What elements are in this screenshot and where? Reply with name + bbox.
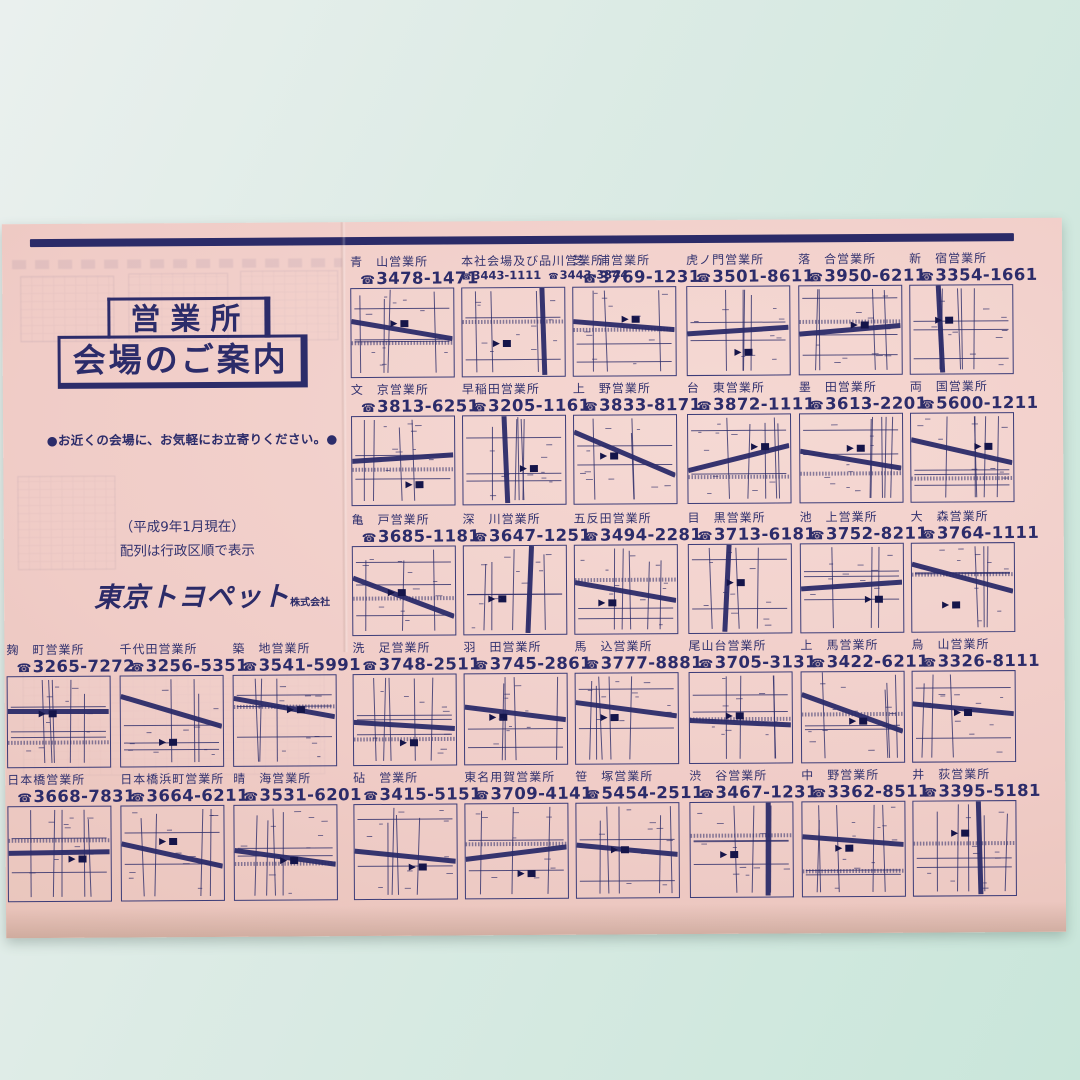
office-name: 芝 浦営業所 [572,254,676,268]
office-map [801,801,906,898]
office-map [689,671,794,764]
office-name: 尾山台営業所 [688,639,792,653]
map-sketch [234,675,336,765]
office-cell: 日本橋浜町営業所 ☎3664-6211 [120,773,224,805]
office-phone: 3541-5991 [259,655,361,675]
office-map [799,413,904,504]
office-phone: 3395-5181 [938,781,1040,801]
office-cell: 東名用賀営業所 ☎3709-4141 [464,771,568,803]
map-sketch [354,674,456,764]
office-map [7,806,112,903]
phone-icon: ☎ [810,656,825,670]
office-cell: 千代田営業所 ☎3256-5351 [119,643,223,675]
office-phone: 5600-1211 [936,393,1038,413]
phone-icon: ☎ [921,656,936,670]
office-phone-line: ☎3777-8881 [584,655,678,672]
office-cell: 日本橋営業所 ☎3668-7831 [7,774,111,806]
office-name: 晴 海営業所 [233,772,337,786]
office-map [353,803,458,900]
office-name: 東名用賀営業所 [464,771,568,785]
office-cell: 早稲田営業所 ☎3205-1161 [462,383,566,415]
paper-bottom-shade [6,902,1066,938]
office-phone: 3354-1661 [935,265,1037,285]
office-cell: 本社会場及び品川営業所 ☎3443-1111☎3443-3344 [461,255,565,282]
office-phone-line: ☎3422-6211 [810,654,904,671]
phone-icon: ☎ [583,400,598,414]
phone-icon: ☎ [811,786,826,800]
phone-icon: ☎ [584,530,599,544]
map-sketch [574,415,676,503]
title-box: 営業所 会場のご案内 [57,296,358,389]
phone-icon: ☎ [809,398,824,412]
office-map [687,413,792,504]
office-map [909,284,1014,375]
office-name: 本社会場及び品川営業所 [461,255,565,269]
office-map [463,545,568,636]
map-sketch [799,286,901,374]
office-phone-line: ☎3326-8111 [921,653,1015,670]
map-sketch [8,807,110,901]
office-name: 渋 谷営業所 [689,769,793,783]
office-name: 羽 田営業所 [463,641,567,655]
office-cell: 尾山台営業所 ☎3705-3131 [688,639,792,671]
office-map [120,675,225,768]
phone-icon: ☎ [548,271,558,281]
office-cell: 五反田営業所 ☎3494-2281 [574,512,678,544]
phone-icon: ☎ [461,272,471,282]
office-name: 新 宿営業所 [909,252,1013,266]
office-name: 笹 塚営業所 [575,770,679,784]
office-cell: 洗 足営業所 ☎3748-2511 [352,641,456,673]
company-logo-text: 東京トヨペット [94,581,290,613]
phone-icon: ☎ [922,786,937,800]
office-cell: 新 宿営業所 ☎3354-1661 [909,252,1013,284]
office-cell: 目 黒営業所 ☎3713-6181 [688,511,792,543]
office-name: 亀 戸営業所 [352,513,456,527]
phone-icon: ☎ [16,661,31,675]
phone-icon: ☎ [473,658,488,672]
office-map [689,801,794,898]
note-date: （平成9年1月現在） [120,515,255,540]
office-name: 日本橋浜町営業所 [120,773,224,787]
office-cell: 墨 田営業所 ☎3613-2201 [799,381,903,413]
phone-icon: ☎ [362,531,377,545]
office-name: 築 地営業所 [232,642,336,656]
office-name: 砧 営業所 [353,771,457,785]
office-name: 麹 町営業所 [6,644,110,658]
office-name: 馬 込営業所 [574,640,678,654]
office-name: 中 野営業所 [801,769,905,783]
office-cell: 上 馬営業所 ☎3422-6211 [800,639,904,671]
office-phone-line: ☎3205-1161 [472,398,566,415]
map-sketch [910,285,1012,373]
phone-icon: ☎ [242,660,257,674]
office-cell: 台 東営業所 ☎3872-1111 [687,381,791,413]
showthrough-text [12,258,342,269]
map-sketch [913,801,1015,895]
office-phone-line: ☎3467-1231 [699,785,793,802]
phone-icon: ☎ [361,401,376,415]
top-rule [30,233,1014,247]
phone-icon: ☎ [584,658,599,672]
office-name: 五反田営業所 [574,512,678,526]
map-sketch [464,546,566,634]
phone-icon: ☎ [699,787,714,801]
map-sketch [802,802,904,896]
office-cell: 亀 戸営業所 ☎3685-1181 [352,513,456,545]
office-map [353,673,458,766]
office-phone-line: ☎3647-1251 [473,528,567,545]
map-sketch [689,544,791,632]
office-phone-line: ☎3265-7272 [16,659,110,676]
map-sketch [354,804,456,898]
map-sketch [234,805,336,899]
office-cell: 渋 谷営業所 ☎3467-1231 [689,769,793,801]
office-name: 文 京営業所 [351,383,455,397]
office-phone-line: ☎3443-1111☎3443-3344 [461,270,565,282]
office-phone-line: ☎3395-5181 [922,783,1016,800]
map-sketch [687,286,789,374]
phone-icon: ☎ [130,791,145,805]
office-map [912,800,1017,897]
office-name: 千代田営業所 [119,643,223,657]
office-name: 台 東営業所 [687,381,791,395]
phone-icon: ☎ [585,788,600,802]
office-cell: 笹 塚営業所 ☎5454-2511 [575,770,679,802]
office-name: 上 野営業所 [573,382,677,396]
map-sketch [121,806,223,900]
office-map [351,415,456,506]
office-phone-line: ☎3745-2861 [473,656,567,673]
office-phone-line: ☎5600-1211 [920,395,1014,412]
office-cell: 烏 山営業所 ☎3326-8111 [911,638,1015,670]
page-title-line1: 営業所 [107,297,270,338]
phone-icon: ☎ [697,399,712,413]
map-sketch [576,803,678,897]
map-sketch [690,802,792,896]
phone-icon: ☎ [17,791,32,805]
office-map [233,674,338,767]
office-map [688,543,793,634]
office-name: 墨 田営業所 [799,381,903,395]
office-cell: 中 野営業所 ☎3362-8511 [801,769,905,801]
phone-icon: ☎ [698,657,713,671]
map-sketch [353,546,455,634]
office-map [686,285,791,376]
phone-icon: ☎ [472,400,487,414]
map-sketch [688,414,790,502]
office-map [575,802,680,899]
office-map [800,543,905,634]
office-phone-line: ☎3764-1111 [921,525,1015,542]
map-sketch [351,288,453,376]
office-cell: 井 荻営業所 ☎3395-5181 [912,768,1016,800]
office-map [573,414,678,505]
office-map [461,287,566,378]
office-phone-line: ☎3685-1181 [362,529,456,546]
phone-icon: ☎ [919,270,934,284]
office-name: 上 馬営業所 [800,639,904,653]
phone-icon: ☎ [243,790,258,804]
office-phone-line: ☎3613-2201 [809,396,903,413]
office-name: 虎ノ門営業所 [686,253,790,267]
office-cell: 羽 田営業所 ☎3745-2861 [463,641,567,673]
phone-icon: ☎ [920,398,935,412]
phone-icon: ☎ [362,659,377,673]
note-order: 配列は行政区順で表示 [120,539,255,564]
office-map [350,287,455,378]
office-phone-line: ☎3256-5351 [129,658,223,675]
map-sketch [352,416,454,504]
office-name: 目 黒営業所 [688,511,792,525]
office-phone-line: ☎3709-4141 [474,786,568,803]
phone-icon: ☎ [810,528,825,542]
office-name: 井 荻営業所 [912,768,1016,782]
page-title-line2: 会場のご案内 [58,334,308,389]
map-sketch [800,414,902,502]
office-cell: 大 森営業所 ☎3764-1111 [911,510,1015,542]
office-map-grid: 青 山営業所 ☎3478-1471 本社会場及び品川営業所 ☎3443-1111… [2,218,1062,224]
office-cell: 麹 町営業所 ☎3265-7272 [6,644,110,676]
office-cell: 上 野営業所 ☎3833-8171 [573,382,677,414]
phone-icon: ☎ [129,661,144,675]
office-phone-line: ☎3668-7831 [17,789,111,806]
paper-sheet: 営業所 会場のご案内 ●お近くの会場に、お気軽にお立寄りください。● （平成9年… [2,218,1066,938]
office-phone-line: ☎3354-1661 [919,267,1013,284]
office-phone-line: ☎3813-6251 [361,399,455,416]
office-phone: 3443-1111 [472,268,541,282]
map-sketch [575,545,677,633]
office-phone-line: ☎3541-5991 [242,657,336,674]
phone-icon: ☎ [808,270,823,284]
office-phone-line: ☎3872-1111 [697,397,791,414]
office-cell: 晴 海営業所 ☎3531-6201 [233,772,337,804]
office-name: 両 国営業所 [910,380,1014,394]
office-cell: 文 京営業所 ☎3813-6251 [351,383,455,415]
map-sketch [576,673,678,763]
office-cell: 青 山営業所 ☎3478-1471 [350,255,454,287]
office-phone-line: ☎3752-8211 [810,526,904,543]
office-name: 落 合営業所 [798,253,902,267]
map-sketch [121,676,223,766]
office-cell: 落 合営業所 ☎3950-6211 [798,253,902,285]
office-phone: 3326-8111 [938,651,1040,671]
office-cell: 深 川営業所 ☎3647-1251 [463,513,567,545]
office-name: 青 山営業所 [350,255,454,269]
note-block: （平成9年1月現在） 配列は行政区順で表示 [120,515,255,564]
office-map [910,412,1015,503]
map-sketch [462,288,564,376]
office-phone-line: ☎3415-5151 [363,787,457,804]
office-map [120,805,225,902]
phone-icon: ☎ [696,271,711,285]
map-sketch [911,413,1013,501]
office-phone-line: ☎3501-8611 [696,269,790,286]
phone-icon: ☎ [698,529,713,543]
office-map [911,542,1016,633]
company-logo-suffix: 株式会社 [290,597,330,608]
office-map [352,545,457,636]
phone-icon: ☎ [582,272,597,286]
office-name: 洗 足営業所 [352,641,456,655]
map-sketch [801,544,903,632]
office-cell: 築 地営業所 ☎3541-5991 [232,642,336,674]
office-map [462,415,567,506]
phone-icon: ☎ [921,528,936,542]
office-cell: 芝 浦営業所 ☎3769-1231 [572,254,676,286]
office-name: 大 森営業所 [911,510,1015,524]
office-cell: 馬 込営業所 ☎3777-8881 [574,640,678,672]
office-phone-line: ☎3531-6201 [243,787,337,804]
office-map [464,673,569,766]
office-cell: 虎ノ門営業所 ☎3501-8611 [686,253,790,285]
office-map [7,676,112,769]
office-name: 池 上営業所 [800,511,904,525]
office-cell: 池 上営業所 ☎3752-8211 [800,511,904,543]
map-sketch [465,804,567,898]
phone-icon: ☎ [360,273,375,287]
office-map [801,671,906,764]
office-phone-line: ☎3769-1231 [582,269,676,286]
office-map [233,804,338,901]
office-phone-line: ☎3478-1471 [360,271,454,288]
map-sketch [8,677,110,767]
office-phone-line: ☎5454-2511 [585,785,679,802]
map-sketch [802,672,904,762]
showthrough-map [17,476,116,571]
map-sketch [465,674,567,764]
map-sketch [690,672,792,762]
office-map [464,803,569,900]
office-name: 深 川営業所 [463,513,567,527]
office-name: 烏 山営業所 [911,638,1015,652]
tagline: ●お近くの会場に、お気軽にお立寄りください。● [29,428,355,449]
map-sketch [912,543,1014,631]
office-phone-line: ☎3664-6211 [130,788,224,805]
office-phone: 3764-1111 [937,523,1039,543]
office-name: 日本橋営業所 [7,774,111,788]
office-phone-line: ☎3748-2511 [362,657,456,674]
office-cell: 砧 営業所 ☎3415-5151 [353,771,457,803]
office-phone-line: ☎3362-8511 [811,784,905,801]
phone-icon: ☎ [474,788,489,802]
office-map [574,544,679,635]
office-phone-line: ☎3494-2281 [584,527,678,544]
phone-icon: ☎ [363,789,378,803]
office-cell: 両 国営業所 ☎5600-1211 [910,380,1014,412]
office-map [912,670,1017,763]
office-map [575,672,680,765]
company-logo: 東京トヨペット株式会社 [94,574,330,614]
map-sketch [463,416,565,504]
office-phone-line: ☎3833-8171 [583,397,677,414]
office-map [798,285,903,376]
office-phone-line: ☎3950-6211 [808,268,902,285]
office-phone: 3531-6201 [259,785,361,805]
office-phone-line: ☎3713-6181 [698,527,792,544]
map-sketch [573,287,675,375]
phone-icon: ☎ [473,530,488,544]
office-map [572,286,677,377]
office-phone-line: ☎3705-3131 [698,655,792,672]
office-name: 早稲田営業所 [462,383,566,397]
map-sketch [913,671,1015,761]
